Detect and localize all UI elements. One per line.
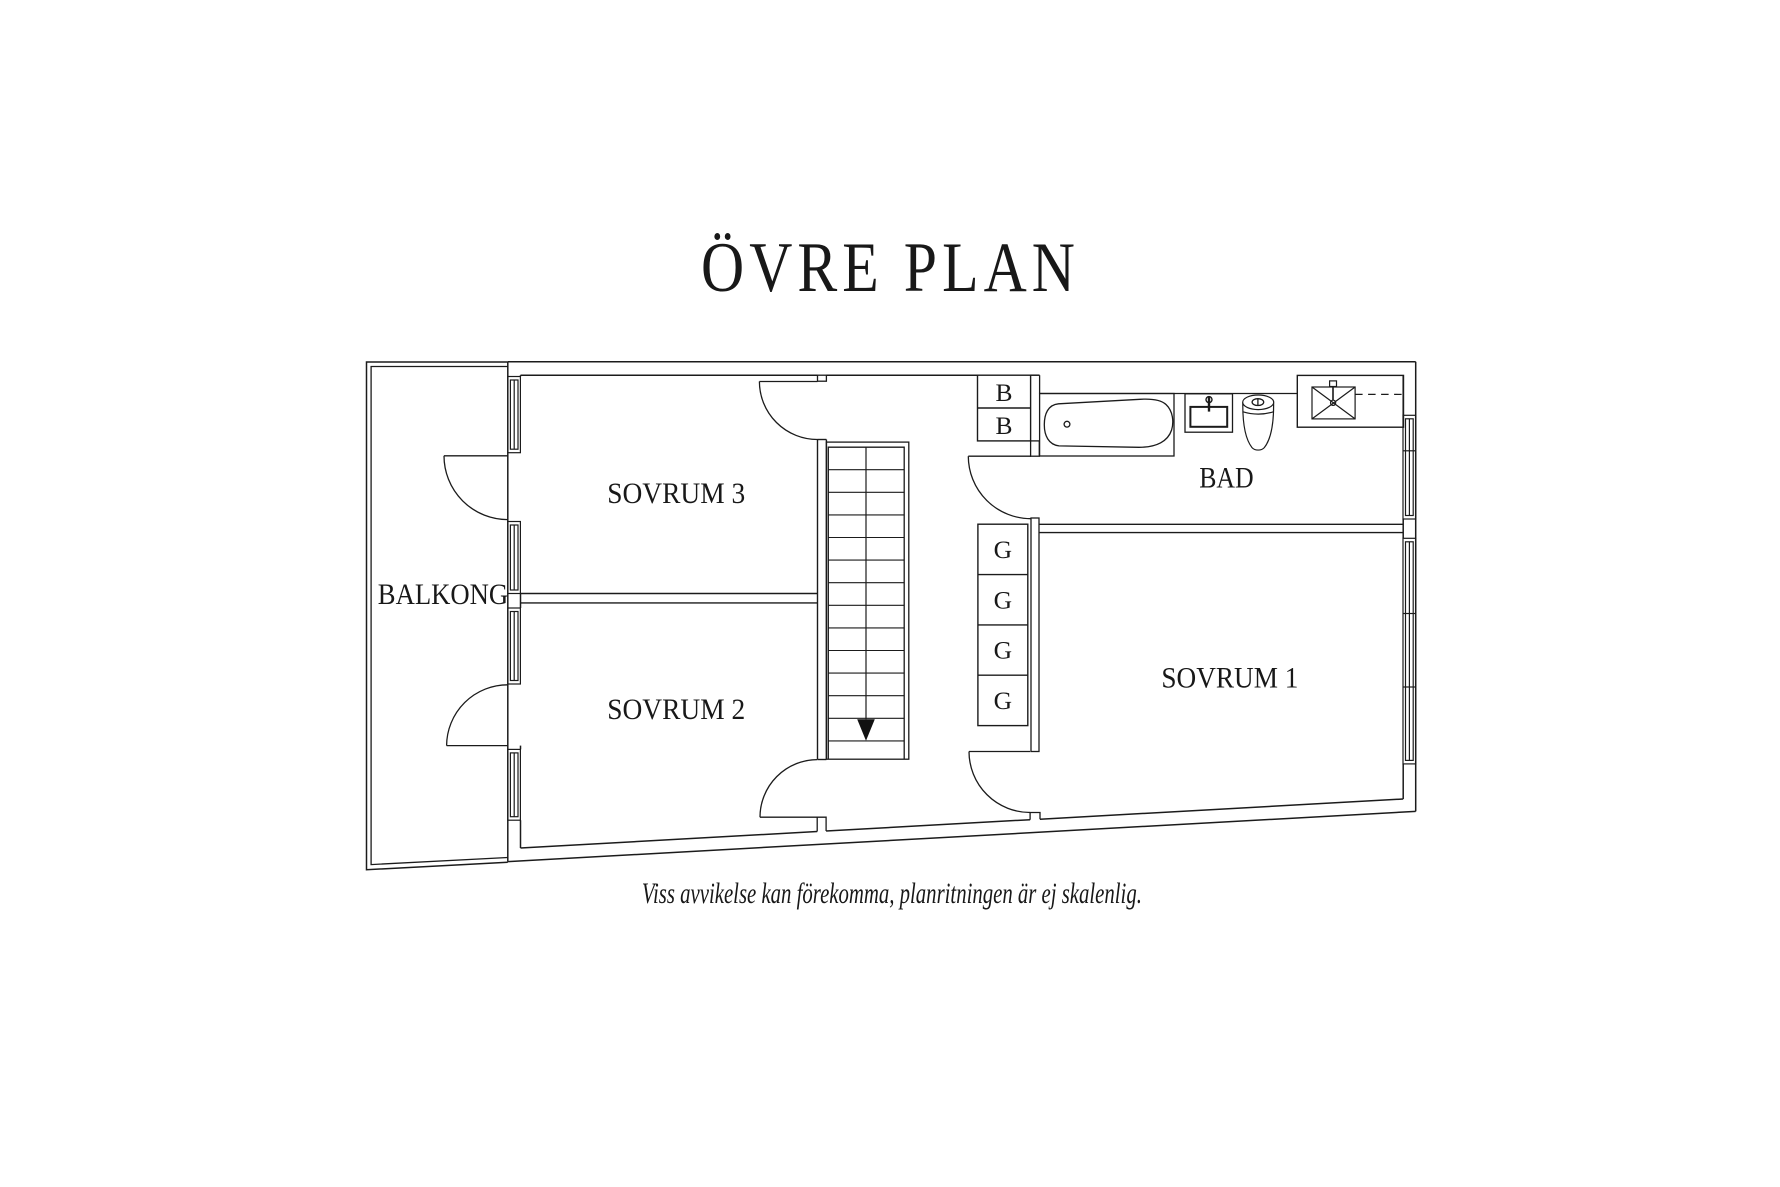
svg-text:B: B xyxy=(995,378,1012,407)
svg-text:G: G xyxy=(994,636,1012,665)
svg-text:SOVRUM 3: SOVRUM 3 xyxy=(607,477,745,510)
svg-text:BALKONG: BALKONG xyxy=(378,578,508,611)
svg-text:G: G xyxy=(994,535,1012,564)
svg-text:ÖVRE PLAN: ÖVRE PLAN xyxy=(701,229,1080,307)
svg-text:BAD: BAD xyxy=(1199,462,1254,495)
svg-text:G: G xyxy=(994,585,1012,614)
svg-text:G: G xyxy=(994,686,1012,715)
svg-text:B: B xyxy=(995,411,1012,440)
svg-text:Viss avvikelse kan förekomma,: Viss avvikelse kan förekomma, planritnin… xyxy=(642,877,1142,910)
svg-text:SOVRUM 1: SOVRUM 1 xyxy=(1161,661,1298,694)
svg-text:SOVRUM 2: SOVRUM 2 xyxy=(607,693,745,726)
